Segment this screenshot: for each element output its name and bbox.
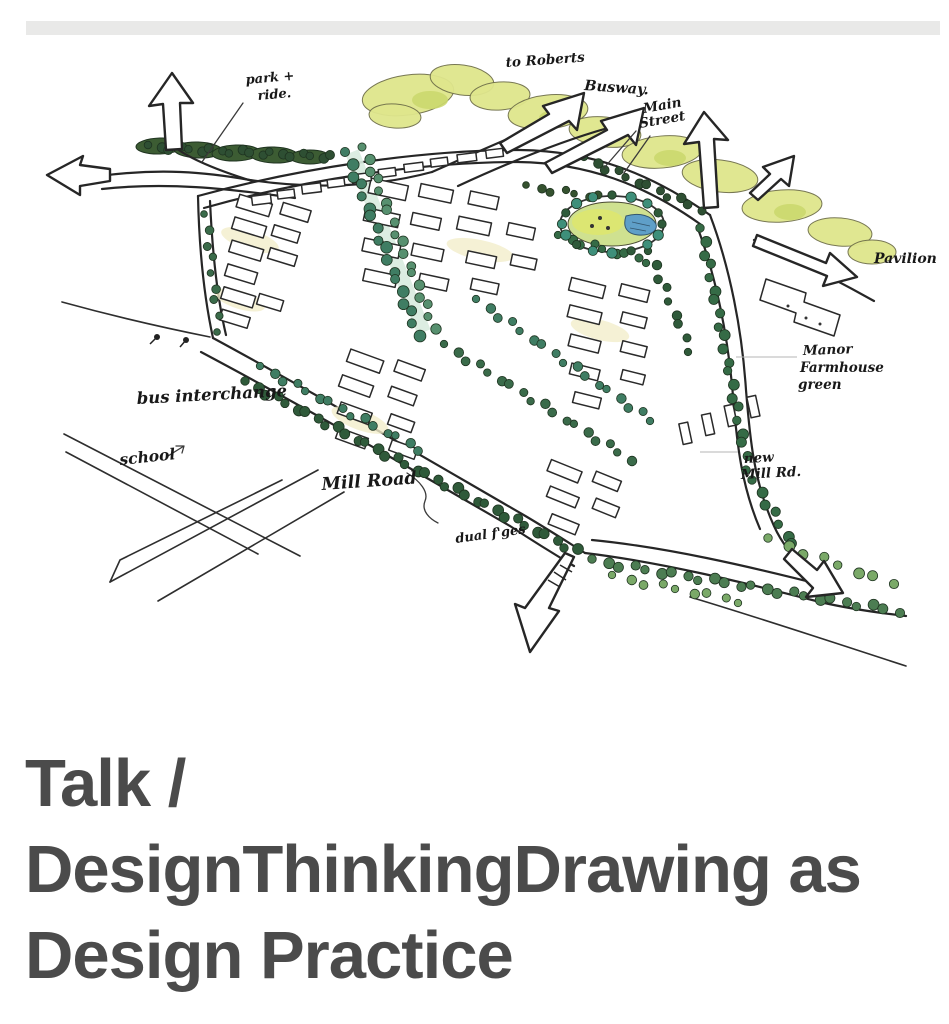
arrow-west xyxy=(47,156,110,195)
label-dual-frontages: dual f'ges xyxy=(454,522,527,547)
page-title-line-2: DesignThinkingDrawing as xyxy=(25,827,930,913)
label-manor-line3: green xyxy=(798,377,842,393)
label-park-ride-line1: park + xyxy=(245,69,295,88)
label-pavilion: Pavilion xyxy=(873,251,937,267)
label-bus-interchange: bus interchange xyxy=(136,381,287,408)
label-to-roberts: to Roberts xyxy=(505,49,585,71)
pavilion-building xyxy=(760,279,840,336)
label-manor-line2: Farmhouse xyxy=(799,360,884,376)
label-new-mill-line2: Mill Rd. xyxy=(739,464,801,483)
masterplan-sketch-image: park + ride. to Roberts Busway. Main Str… xyxy=(0,0,949,700)
page-title: Talk / DesignThinkingDrawing as Design P… xyxy=(25,741,930,999)
label-mill-road: Mill Road xyxy=(320,468,417,495)
label-manor-line1: Manor xyxy=(802,341,854,359)
label-school: school xyxy=(118,444,176,469)
page-title-line-3: Design Practice xyxy=(25,913,930,999)
page: park + ride. to Roberts Busway. Main Str… xyxy=(0,0,949,1024)
label-new-mill-line1: new xyxy=(743,449,775,467)
page-title-line-1: Talk / xyxy=(25,741,930,827)
label-park-ride-line2: ride. xyxy=(257,86,292,104)
label-busway: Busway. xyxy=(583,77,650,99)
